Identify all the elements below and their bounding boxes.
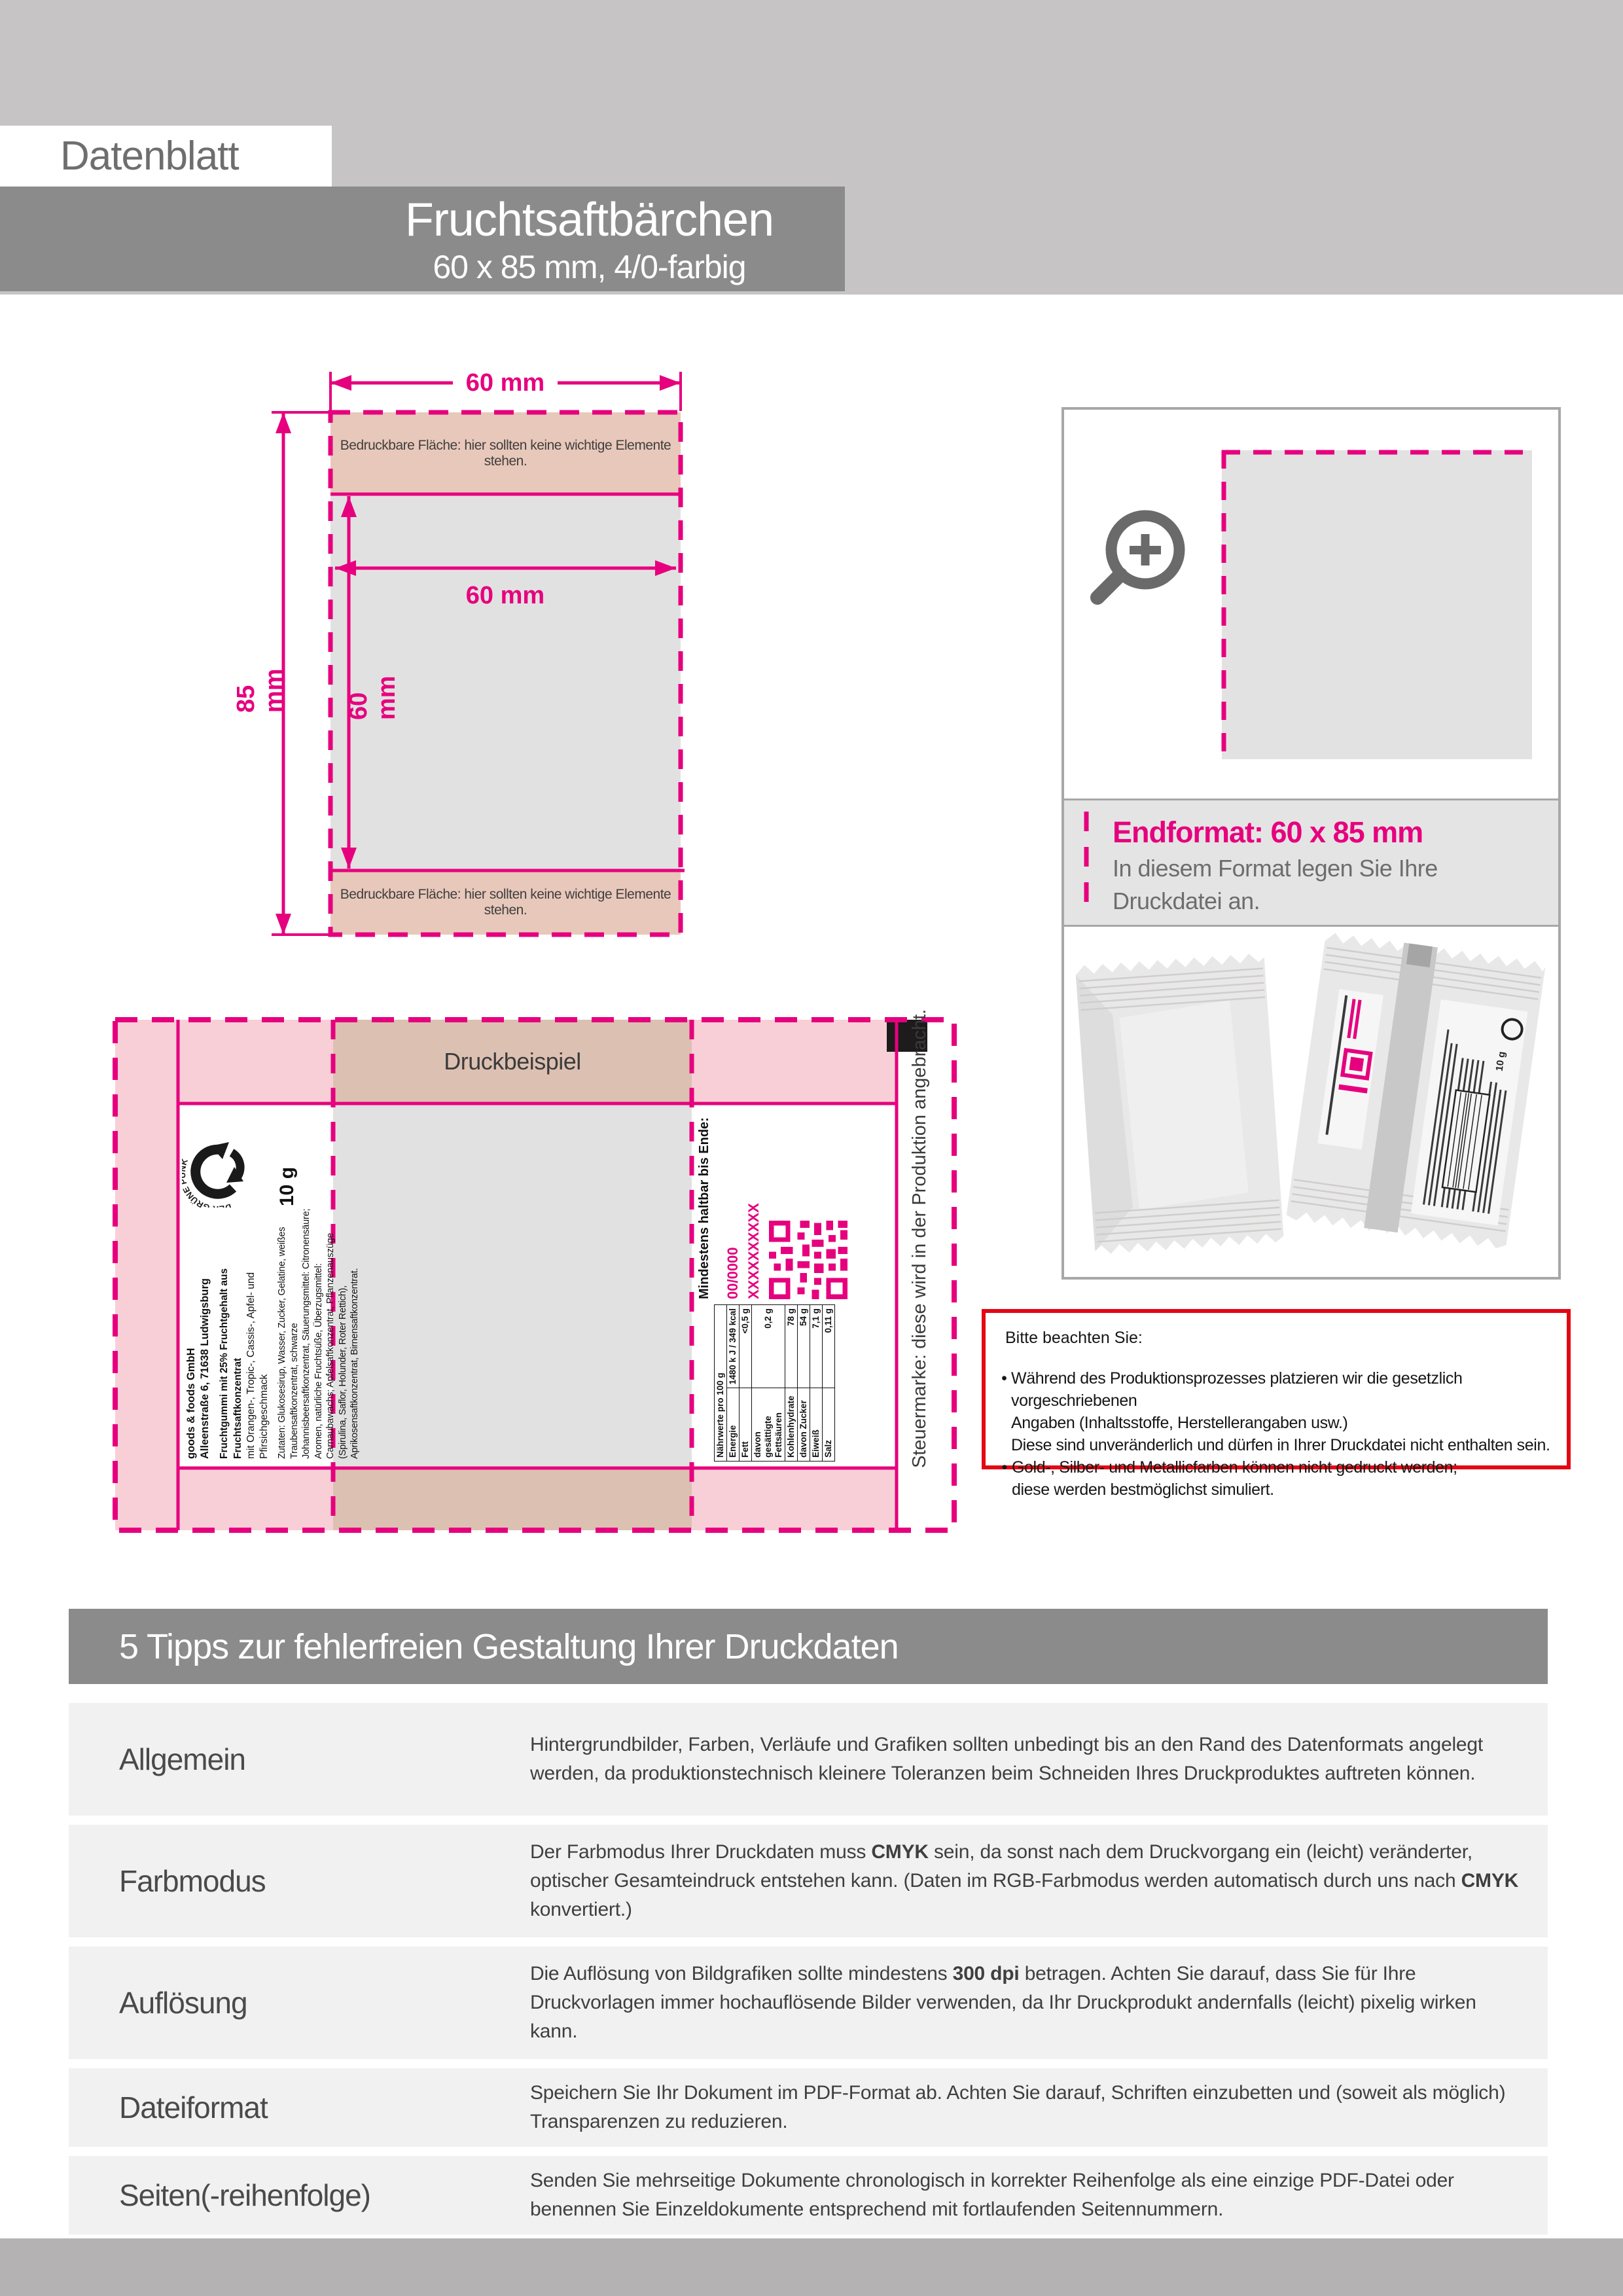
nutrition-row: davon gesättigte Fettsäuren0,2 g xyxy=(752,1305,785,1462)
nutrition-row: Kohlenhydrate78 g xyxy=(785,1305,798,1462)
page-subtitle: 60 x 85 mm, 4/0-farbig xyxy=(334,248,845,286)
tip-text: Der Farbmodus Ihrer Druckdaten muss CMYK… xyxy=(530,1838,1525,1924)
layout-bleed-left xyxy=(115,1020,178,1530)
tip-label: Allgemein xyxy=(119,1703,245,1816)
dim-inner-height-label: 60 mm xyxy=(359,641,387,720)
tip-text: Speichern Sie Ihr Dokument im PDF-Format… xyxy=(530,2079,1525,2136)
page-title: Fruchtsaftbärchen xyxy=(334,193,845,247)
label-address: Alleenstraße 6, 71638 Ludwigsburg xyxy=(198,1207,212,1459)
layout-printable-bottom xyxy=(333,1468,692,1530)
tips-heading: 5 Tipps zur fehlerfreien Gestaltung Ihre… xyxy=(119,1626,899,1667)
magnifier-plus-icon xyxy=(1083,494,1207,619)
product-title-banner: Fruchtsaftbärchen 60 x 85 mm, 4/0-farbig xyxy=(0,187,845,291)
tip-label: Auflösung xyxy=(119,1946,247,2059)
doc-type-box: Datenblatt xyxy=(0,126,332,187)
tip-row-allgemein: Allgemein Hintergrundbilder, Farben, Ver… xyxy=(69,1703,1548,1816)
endformat-bleed-square xyxy=(1222,450,1532,759)
notice-title: Bitte beachten Sie: xyxy=(1005,1329,1567,1348)
dim-inner-width-label: 60 mm xyxy=(453,581,558,610)
datasheet-page: Datenblatt Fruchtsaftbärchen 60 x 85 mm,… xyxy=(0,0,1623,2296)
tip-text: Hintergrundbilder, Farben, Verläufe und … xyxy=(530,1731,1525,1788)
label-product-sub: mit Orangen-, Tropic-, Cassis-, Apfel- u… xyxy=(245,1207,271,1459)
nutrition-header: Nährwerte pro 100 g xyxy=(715,1305,727,1462)
nutrition-row: Eiweiß7,1 g xyxy=(810,1305,823,1462)
dim-height-label: 85 mm xyxy=(246,634,275,713)
footer-gray-band xyxy=(0,2238,1623,2296)
nutrition-rows: Energie1480 k J / 349 kcalFett<0,5 gdavo… xyxy=(727,1305,835,1462)
label-ingredients: Zutaten: Glukosesirup, Wasser, Zucker, G… xyxy=(276,1207,361,1459)
druckbeispiel-title: Druckbeispiel xyxy=(333,1020,692,1103)
tip-row-aufloesung: Auflösung Die Auflösung von Bildgrafiken… xyxy=(69,1946,1548,2059)
tip-row-farbmodus: Farbmodus Der Farbmodus Ihrer Druckdaten… xyxy=(69,1825,1548,1937)
endformat-line2: Druckdatei an. xyxy=(1113,885,1438,918)
nutrition-row: Energie1480 k J / 349 kcal xyxy=(727,1305,740,1462)
printable-note-top: Bedruckbare Fläche: hier sollten keine w… xyxy=(337,412,674,494)
tips-heading-banner: 5 Tipps zur fehlerfreien Gestaltung Ihre… xyxy=(69,1609,1548,1684)
label-company: goods & foods GmbH xyxy=(185,1207,198,1459)
notice-bullet: •Gold-, Silber- und Metallicfarben könne… xyxy=(997,1456,1567,1501)
notice-bullet: •Während des Produktionsprozesses platzi… xyxy=(997,1367,1567,1456)
nutrition-table: Nährwerte pro 100 g Energie1480 k J / 34… xyxy=(714,1304,835,1462)
steuermarke-note: Steuermarke: diese wird in der Produktio… xyxy=(902,1103,937,1468)
sachet-front-photo xyxy=(1070,948,1290,1259)
dim-width-label: 60 mm xyxy=(453,368,558,397)
doc-type-label: Datenblatt xyxy=(60,133,239,179)
endformat-line1: In diesem Format legen Sie Ihre xyxy=(1113,852,1438,885)
mhd-date2: XXXXXXXXXX xyxy=(744,1203,764,1299)
qr-code-icon xyxy=(769,1221,847,1299)
printable-note-bottom: Bedruckbare Fläche: hier sollten keine w… xyxy=(337,870,674,935)
tip-label: Seiten(-reihenfolge) xyxy=(119,2156,370,2234)
nutrition-row: davon Zucker54 g xyxy=(798,1305,810,1462)
notice-box: Bitte beachten Sie: •Während des Produkt… xyxy=(982,1309,1571,1469)
mhd-date1: 00/0000 xyxy=(723,1247,743,1299)
sachet-back-photo: 10 g xyxy=(1280,929,1552,1256)
label-weight: 10 g xyxy=(276,1167,298,1206)
tip-text: Senden Sie mehrseitige Dokumente chronol… xyxy=(530,2166,1525,2224)
green-dot-icon: DER GRÜNE PUNKT xyxy=(182,1134,255,1208)
tip-row-dateiformat: Dateiformat Speichern Sie Ihr Dokument i… xyxy=(69,2068,1548,2147)
label-product: Fruchtgummi mit 25% Fruchtgehalt aus Fru… xyxy=(217,1207,245,1459)
tip-label: Dateiformat xyxy=(119,2068,268,2147)
notice-bullets: •Während des Produktionsprozesses platzi… xyxy=(986,1367,1567,1501)
mhd-label: Mindestens haltbar bis Ende: xyxy=(697,1117,712,1299)
nutrition-row: Salz0,11 g xyxy=(823,1305,835,1462)
tip-label: Farbmodus xyxy=(119,1825,266,1937)
endformat-text: In diesem Format legen Sie Ihre Druckdat… xyxy=(1113,852,1438,918)
endformat-title: Endformat: 60 x 85 mm xyxy=(1113,816,1423,850)
green-dot-text: DER GRÜNE PUNKT xyxy=(182,1157,233,1208)
pack-label-left: goods & foods GmbH Alleenstraße 6, 71638… xyxy=(178,1103,543,1259)
svg-text:DER GRÜNE PUNKT: DER GRÜNE PUNKT xyxy=(182,1157,233,1208)
product-photo-area: 10 g xyxy=(1064,929,1558,1277)
tip-row-seitenreihenfolge: Seiten(-reihenfolge) Senden Sie mehrseit… xyxy=(69,2156,1548,2234)
nutrition-row: Fett<0,5 g xyxy=(740,1305,752,1462)
tip-text: Die Auflösung von Bildgrafiken sollte mi… xyxy=(530,1960,1525,2046)
